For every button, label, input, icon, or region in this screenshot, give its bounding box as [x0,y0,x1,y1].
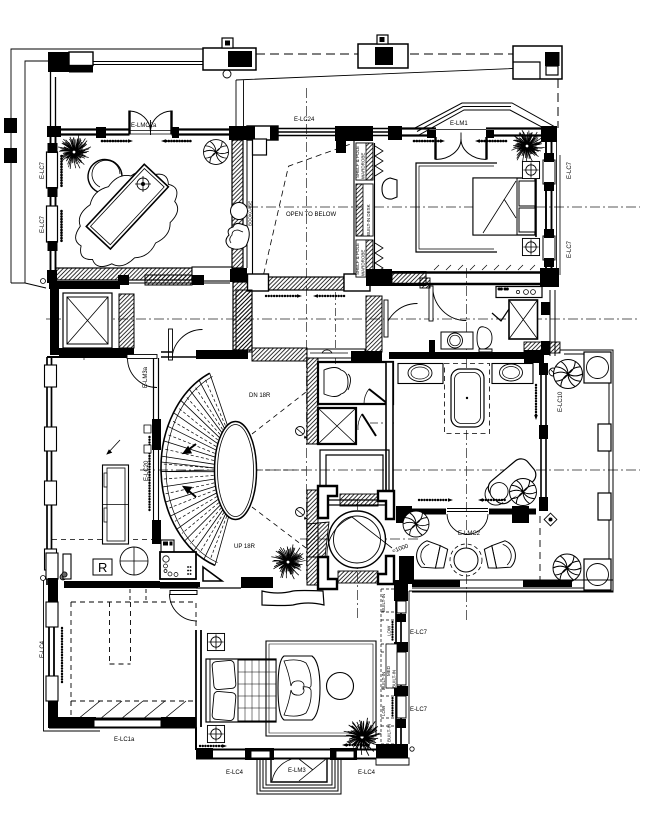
svg-text:WARDROBE: WARDROBE [361,153,366,179]
svg-text:E-LC1a: E-LC1a [114,737,135,743]
svg-text:BOOKCASE: BOOKCASE [248,201,253,226]
svg-text:E-LC7: E-LC7 [410,707,428,713]
svg-text:SHELF & POLE: SHELF & POLE [355,146,360,178]
svg-text:E-LC7: E-LC7 [410,630,428,636]
svg-text:E-LMC2a: E-LMC2a [131,123,157,129]
svg-text:OPEN TO BELOW: OPEN TO BELOW [286,212,336,218]
svg-text:BUILT-IN: BUILT-IN [381,672,386,690]
svg-text:R: R [98,560,107,575]
svg-text:E-LC7: E-LC7 [567,240,573,258]
svg-text:UP 18R: UP 18R [234,544,256,550]
svg-text:E-LC10: E-LC10 [558,391,564,412]
svg-text:E-LC4: E-LC4 [358,770,376,776]
svg-text:E-LM1: E-LM1 [450,121,468,127]
svg-text:E-LC7: E-LC7 [40,161,46,179]
svg-text:BUILT-IN DESK: BUILT-IN DESK [366,204,371,236]
svg-text:SHELF & POLE: SHELF & POLE [355,243,360,275]
svg-text:BUILT-IN: BUILT-IN [392,670,397,688]
svg-text:E-LC20: E-LC20 [144,460,150,481]
svg-text:LOW: LOW [387,625,392,636]
svg-text:BUILT-IN: BUILT-IN [381,594,386,612]
svg-text:E-LM3: E-LM3 [288,768,306,774]
svg-text:E-LC4: E-LC4 [40,640,46,658]
svg-text:E-LC24: E-LC24 [294,117,315,123]
svg-text:E-LM3a: E-LM3a [143,366,149,388]
svg-text:LOW: LOW [381,705,386,716]
svg-text:MED: MED [386,665,391,676]
svg-text:DN 18R: DN 18R [249,393,271,399]
svg-text:E-LC7: E-LC7 [40,215,46,233]
svg-text:E-LC4: E-LC4 [226,770,244,776]
svg-text:E-LMC2: E-LMC2 [458,531,481,537]
svg-text:BUILT-IN: BUILT-IN [387,724,392,742]
svg-text:WARDROBE: WARDROBE [361,250,366,276]
svg-text:E-LC7: E-LC7 [567,161,573,179]
